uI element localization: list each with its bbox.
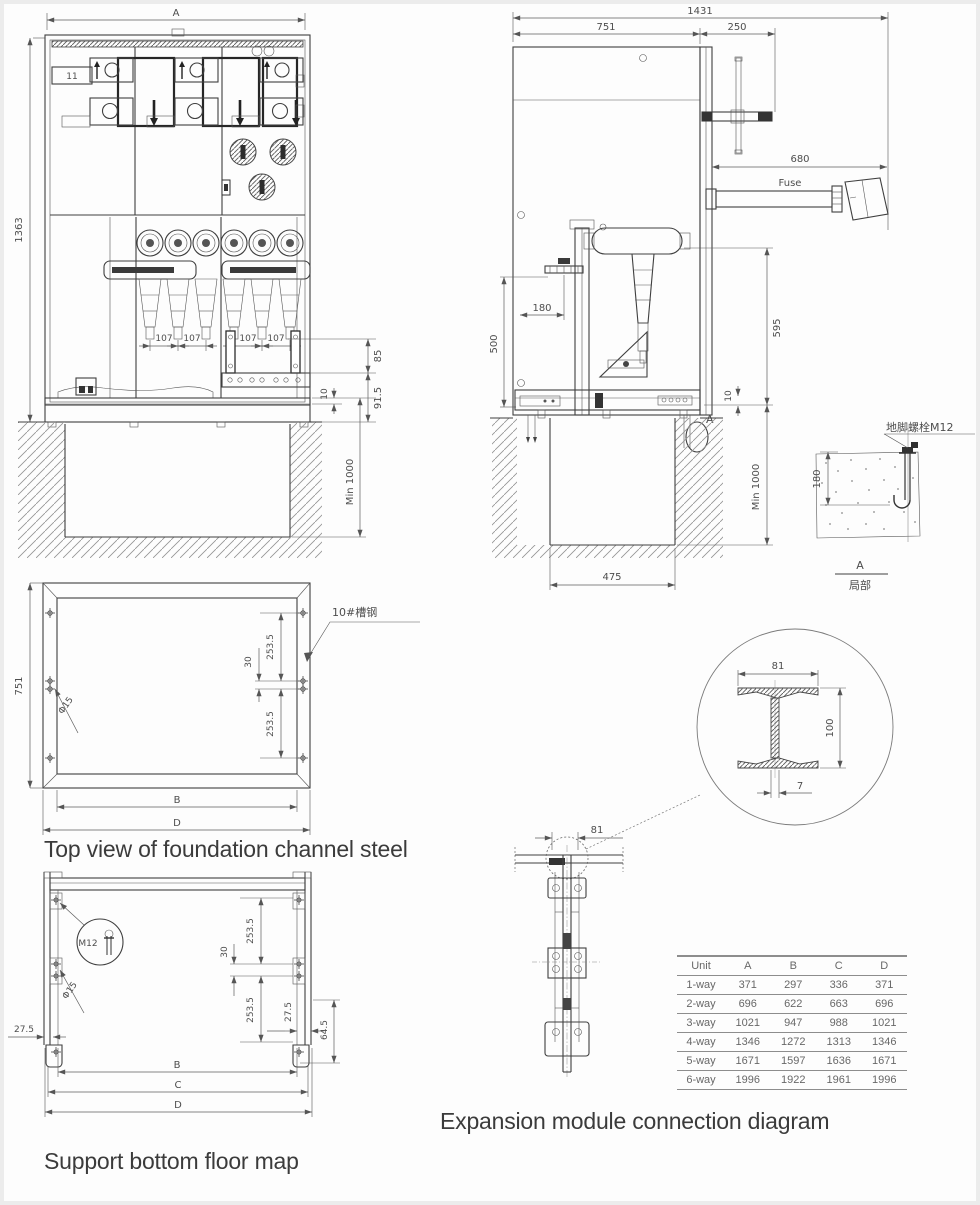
fuse-label: Fuse [779, 178, 802, 189]
m12-label: M12 [78, 939, 97, 949]
foundation-view-caption: Top view of foundation channel steel [44, 836, 408, 863]
switch-bay [147, 58, 244, 127]
svg-text:D: D [174, 1100, 182, 1111]
svg-text:107: 107 [183, 334, 200, 344]
svg-text:751: 751 [596, 22, 615, 33]
svg-text:B: B [174, 1060, 181, 1071]
cable-terminations [139, 279, 301, 339]
svg-text:B: B [174, 795, 181, 806]
table-cell: 1313 [816, 1033, 862, 1052]
cabinet-side-outline [513, 47, 700, 415]
table-header-cell: D [862, 956, 908, 976]
top-busbar-strip [52, 41, 303, 47]
table-cell: 1996 [862, 1071, 908, 1090]
svg-text:253.5: 253.5 [246, 997, 256, 1023]
svg-text:64.5: 64.5 [320, 1020, 330, 1040]
base-frame [45, 398, 310, 422]
table-header-cell: Unit [677, 956, 725, 976]
table-header-cell: C [816, 956, 862, 976]
table-row: 1-way 371 297 336 371 [677, 976, 907, 995]
table-cell: 696 [725, 995, 771, 1014]
nameplate-label: 11 [66, 72, 77, 82]
table-row: 4-way 1346 1272 1313 1346 [677, 1033, 907, 1052]
table-cell: 5-way [677, 1052, 725, 1071]
svg-text:27.5: 27.5 [14, 1025, 34, 1035]
expansion-module-drawing: 81 [515, 795, 700, 1078]
svg-text:595: 595 [772, 318, 783, 337]
table-header-row: Unit A B C D [677, 956, 907, 976]
svg-text:Min 1000: Min 1000 [345, 459, 356, 505]
table-cell: 1021 [725, 1014, 771, 1033]
ibeam-bottom-flange [738, 758, 818, 768]
svg-text:180: 180 [812, 469, 823, 488]
table-cell: 2-way [677, 995, 725, 1014]
svg-text:253.5: 253.5 [266, 711, 276, 737]
table-cell: 1996 [725, 1071, 771, 1090]
table-cell: 1961 [816, 1071, 862, 1090]
switch-bay [62, 58, 158, 127]
right-rail [293, 872, 311, 1067]
dim-label: A [173, 8, 180, 19]
svg-text:107: 107 [239, 334, 256, 344]
svg-text:Min 1000: Min 1000 [751, 464, 762, 510]
anchor-hole-marks [45, 608, 308, 763]
ground-hatch [18, 422, 322, 558]
table-header-cell: A [725, 956, 771, 976]
ibeam-detail-circle: 81 100 7 [697, 629, 893, 825]
table-header-cell: B [771, 956, 817, 976]
side-ground-hatch [492, 418, 723, 558]
table-cell: 371 [725, 976, 771, 995]
svg-text:100: 100 [825, 718, 836, 737]
operating-dials [222, 139, 296, 200]
engineering-drawing-sheet: A 1363 11 [0, 0, 980, 1205]
dim-label: 1363 [14, 217, 25, 242]
table-cell: 622 [771, 995, 817, 1014]
table-cell: 696 [862, 995, 908, 1014]
svg-text:7: 7 [797, 781, 803, 792]
anchor-bolt-detail: 180 地脚螺栓M12 A 局部 [812, 420, 975, 592]
svg-text:751: 751 [14, 676, 25, 695]
svg-text:81: 81 [772, 661, 785, 672]
table-cell: 6-way [677, 1071, 725, 1090]
table-cell: 988 [816, 1014, 862, 1033]
table-row: 6-way 1996 1922 1961 1996 [677, 1071, 907, 1090]
svg-text:10: 10 [320, 388, 330, 400]
cable-bushings [104, 230, 310, 279]
channel-steel-label: 10#槽钢 [332, 606, 377, 619]
table-cell: 1671 [725, 1052, 771, 1071]
svg-text:250: 250 [727, 22, 746, 33]
front-view-drawing: A 1363 11 [14, 8, 384, 558]
svg-text:85: 85 [373, 350, 384, 363]
svg-text:81: 81 [591, 825, 604, 836]
svg-text:27.5: 27.5 [284, 1002, 294, 1022]
ibeam-top-flange [738, 688, 818, 698]
module-connector-assembly [532, 845, 602, 1078]
svg-text:500: 500 [489, 334, 500, 353]
ibeam-web [771, 698, 779, 758]
foundation-top-view-drawing: 751 Φ15 10#槽钢 30 253.5 253.5 B D [14, 583, 420, 835]
detail-ref-letter: A [856, 559, 864, 572]
m12-bolt-glyph [104, 930, 114, 955]
svg-text:680: 680 [790, 154, 809, 165]
cabinet-outline [45, 35, 310, 405]
concrete-speckles [821, 458, 916, 530]
svg-text:107: 107 [155, 334, 172, 344]
svg-text:253.5: 253.5 [246, 918, 256, 944]
svg-text:253.5: 253.5 [266, 634, 276, 660]
svg-text:30: 30 [220, 946, 230, 958]
svg-text:180: 180 [532, 303, 551, 314]
switch-bay [232, 58, 303, 127]
svg-text:107: 107 [267, 334, 284, 344]
bus-loop [263, 58, 297, 126]
table-row: 5-way 1671 1597 1636 1671 [677, 1052, 907, 1071]
table-cell: 1346 [862, 1033, 908, 1052]
table-cell: 947 [771, 1014, 817, 1033]
table-cell: 1671 [862, 1052, 908, 1071]
detail-ref-caption: 局部 [849, 578, 871, 592]
table-row: 3-way 1021 947 988 1021 [677, 1014, 907, 1033]
svg-text:C: C [175, 1080, 182, 1091]
table-cell: 663 [816, 995, 862, 1014]
interior-bushing [584, 228, 690, 377]
table-cell: 1-way [677, 976, 725, 995]
detail-leader-line [586, 795, 700, 849]
svg-text:475: 475 [602, 572, 621, 583]
table-cell: 3-way [677, 1014, 725, 1033]
svg-text:10: 10 [724, 390, 734, 402]
table-cell: 297 [771, 976, 817, 995]
svg-text:1431: 1431 [687, 6, 712, 17]
table-cell: 1922 [771, 1071, 817, 1090]
wall-bracket [545, 258, 583, 273]
anchor-bolt-label: 地脚螺栓M12 [886, 420, 954, 434]
svg-text:D: D [173, 818, 181, 829]
expansion-view-caption: Expansion module connection diagram [440, 1108, 829, 1135]
spacing-dims: 107 107 107 107 [139, 334, 301, 351]
support-bottom-drawing: M12 Φ15 27.5 30 253.5 253.5 27.5 64.5 B … [8, 872, 340, 1117]
table-row: 2-way 696 622 663 696 [677, 995, 907, 1014]
vent-hole [252, 46, 262, 56]
vent-hole [264, 46, 274, 56]
table-cell: 1636 [816, 1052, 862, 1071]
table-cell: 1272 [771, 1033, 817, 1052]
table-cell: 1597 [771, 1052, 817, 1071]
table-cell: 1021 [862, 1014, 908, 1033]
left-rail [44, 872, 62, 1067]
hole-dia-label: Φ15 [61, 980, 80, 1001]
support-view-caption: Support bottom floor map [44, 1148, 299, 1175]
table-cell: 371 [862, 976, 908, 995]
svg-text:30: 30 [244, 656, 254, 668]
side-base-frame [515, 390, 700, 418]
table-cell: 4-way [677, 1033, 725, 1052]
table-cell: 1346 [725, 1033, 771, 1052]
svg-text:91.5: 91.5 [373, 387, 384, 409]
spec-table: Unit A B C D 1-way 371 297 336 371 2-way… [677, 955, 907, 1090]
table-cell: 336 [816, 976, 862, 995]
